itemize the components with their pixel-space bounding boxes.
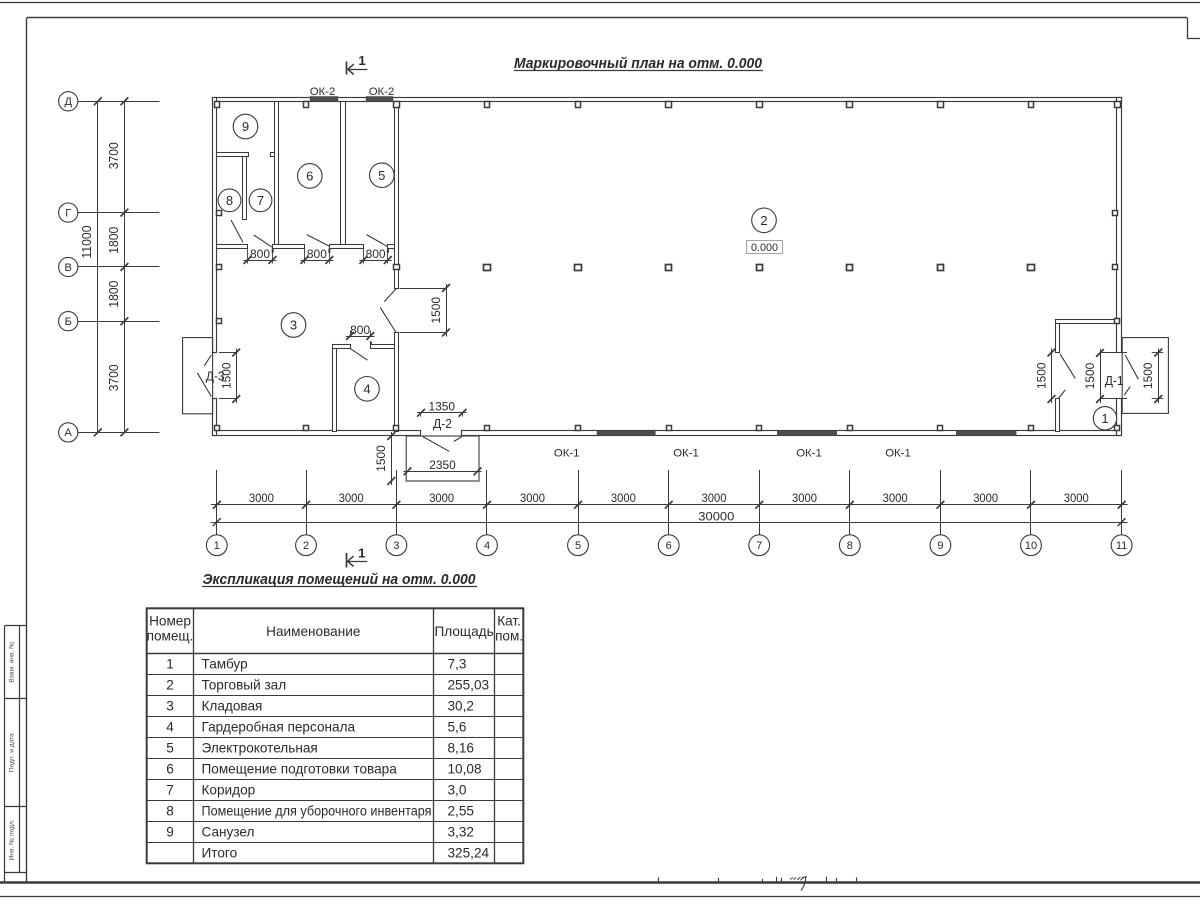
svg-text:Г: Г <box>65 207 71 219</box>
svg-text:800: 800 <box>350 323 370 337</box>
svg-text:Наименование: Наименование <box>266 624 360 639</box>
svg-text:800: 800 <box>250 247 270 261</box>
svg-text:4: 4 <box>484 540 490 552</box>
svg-text:Д-1: Д-1 <box>1105 374 1124 388</box>
svg-text:2: 2 <box>760 213 767 228</box>
svg-text:пом.: пом. <box>495 629 523 644</box>
svg-text:Помещение подготовки товара: Помещение подготовки товара <box>202 762 398 777</box>
svg-text:Итого: Итого <box>202 846 238 861</box>
svg-text:Площадь: Площадь <box>435 624 494 639</box>
svg-text:Торговый зал: Торговый зал <box>202 678 287 693</box>
svg-text:8: 8 <box>847 540 853 552</box>
svg-text:4: 4 <box>166 720 174 735</box>
svg-text:Электрокотельная: Электрокотельная <box>202 741 318 756</box>
svg-text:325,24: 325,24 <box>448 846 490 861</box>
svg-text:9: 9 <box>937 540 943 552</box>
svg-text:1: 1 <box>214 540 220 552</box>
svg-text:1500: 1500 <box>429 297 443 324</box>
svg-text:3: 3 <box>166 699 174 714</box>
svg-text:800: 800 <box>307 247 327 261</box>
svg-text:3000: 3000 <box>249 491 274 505</box>
svg-text:800: 800 <box>366 247 386 261</box>
svg-text:5: 5 <box>378 168 385 183</box>
svg-text:7,3: 7,3 <box>448 657 467 672</box>
svg-text:А: А <box>65 427 73 439</box>
svg-text:6: 6 <box>666 540 672 552</box>
svg-text:30000: 30000 <box>698 510 734 524</box>
svg-text:5,6: 5,6 <box>448 720 467 735</box>
svg-text:1: 1 <box>166 657 174 672</box>
svg-text:10,08: 10,08 <box>448 762 482 777</box>
svg-text:3000: 3000 <box>611 491 636 505</box>
svg-text:2350: 2350 <box>429 458 456 472</box>
svg-text:2: 2 <box>303 540 309 552</box>
svg-text:7: 7 <box>257 193 264 208</box>
svg-text:Взам. инв. №: Взам. инв. № <box>9 642 16 683</box>
svg-text:11: 11 <box>1116 540 1127 552</box>
svg-text:Кат.: Кат. <box>497 614 521 629</box>
svg-text:1: 1 <box>358 53 365 68</box>
svg-text:2: 2 <box>166 678 174 693</box>
svg-text:10: 10 <box>1025 540 1037 552</box>
svg-text:помещ.: помещ. <box>147 629 194 644</box>
svg-text:11000: 11000 <box>80 226 94 259</box>
svg-text:6: 6 <box>166 762 174 777</box>
svg-text:Подп. и дата: Подп. и дата <box>9 733 16 772</box>
svg-text:1500: 1500 <box>1083 363 1097 390</box>
svg-text:Инв. № подл.: Инв. № подл. <box>9 819 16 860</box>
svg-text:3,32: 3,32 <box>448 825 474 840</box>
svg-text:1500: 1500 <box>1141 362 1155 389</box>
svg-text:3000: 3000 <box>520 491 545 505</box>
svg-text:Экспликация помещений на отм.: Экспликация помещений на отм. 0.000 <box>203 572 476 588</box>
svg-text:1500: 1500 <box>1034 362 1048 389</box>
svg-text:Д-3: Д-3 <box>206 370 225 384</box>
svg-text:Номер: Номер <box>149 614 191 629</box>
svg-text:4: 4 <box>363 381 370 396</box>
svg-text:8: 8 <box>226 193 233 208</box>
svg-text:1: 1 <box>358 545 365 560</box>
svg-text:9: 9 <box>166 825 174 840</box>
svg-text:1500: 1500 <box>374 445 388 472</box>
svg-text:7: 7 <box>756 540 762 552</box>
svg-text:Коридор: Коридор <box>202 783 256 798</box>
svg-text:8,16: 8,16 <box>448 741 474 756</box>
svg-text:3700: 3700 <box>107 364 121 391</box>
svg-text:3000: 3000 <box>1064 491 1089 505</box>
svg-text:3: 3 <box>393 540 399 552</box>
svg-text:3000: 3000 <box>883 491 908 505</box>
svg-text:Гардеробная персонала: Гардеробная персонала <box>202 720 356 735</box>
svg-text:7: 7 <box>166 783 174 798</box>
svg-text:1: 1 <box>1101 411 1108 426</box>
svg-text:3000: 3000 <box>429 491 454 505</box>
svg-text:3,0: 3,0 <box>448 783 467 798</box>
svg-text:В: В <box>65 262 72 274</box>
svg-text:Кладовая: Кладовая <box>202 699 263 714</box>
svg-text:Маркировочный план на отм. 0.0: Маркировочный план на отм. 0.000 <box>514 56 762 72</box>
svg-text:5: 5 <box>166 741 174 756</box>
svg-text:8: 8 <box>166 804 174 819</box>
svg-text:1800: 1800 <box>107 227 121 254</box>
svg-text:ОК-1: ОК-1 <box>885 448 911 460</box>
svg-text:3000: 3000 <box>792 491 817 505</box>
svg-text:Помещение для уборочного инвен: Помещение для уборочного инвентаря <box>202 804 432 819</box>
svg-text:6: 6 <box>306 169 313 184</box>
svg-text:3000: 3000 <box>339 491 364 505</box>
svg-text:2,55: 2,55 <box>448 804 474 819</box>
svg-text:ОК-2: ОК-2 <box>310 86 336 98</box>
svg-text:ОК-1: ОК-1 <box>673 448 699 460</box>
svg-text:9: 9 <box>242 119 249 134</box>
svg-text:3000: 3000 <box>702 491 727 505</box>
svg-text:Б: Б <box>65 316 72 328</box>
svg-text:3: 3 <box>290 318 297 333</box>
svg-text:ОК-1: ОК-1 <box>554 448 580 460</box>
svg-text:0.000: 0.000 <box>751 242 778 254</box>
svg-text:5: 5 <box>575 540 581 552</box>
svg-text:Тамбур: Тамбур <box>202 657 248 672</box>
svg-text:1800: 1800 <box>107 281 121 308</box>
svg-text:Санузел: Санузел <box>202 825 255 840</box>
svg-text:3700: 3700 <box>107 142 121 169</box>
svg-text:255,03: 255,03 <box>448 678 490 693</box>
svg-text:1350: 1350 <box>429 399 456 413</box>
svg-text:ОК-2: ОК-2 <box>369 86 395 98</box>
svg-text:ОК-1: ОК-1 <box>796 448 822 460</box>
svg-text:3000: 3000 <box>973 491 998 505</box>
svg-text:Д-2: Д-2 <box>433 417 452 431</box>
svg-text:30,2: 30,2 <box>448 699 474 714</box>
svg-text:Д: Д <box>64 96 72 108</box>
